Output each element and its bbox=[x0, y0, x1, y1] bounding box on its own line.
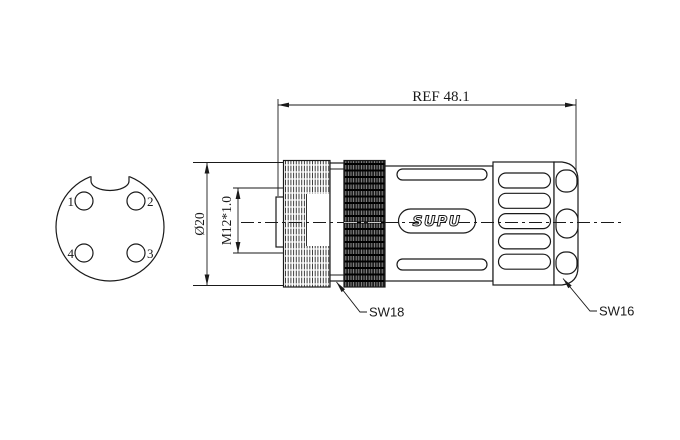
dim-overall-length-text: REF 48.1 bbox=[412, 89, 470, 105]
arrowhead-left bbox=[278, 103, 289, 108]
pin-1 bbox=[75, 192, 93, 210]
arrowhead-top bbox=[205, 163, 210, 174]
pin-4-label: 4 bbox=[68, 246, 75, 261]
pin-4 bbox=[75, 244, 93, 262]
keyway-notch-mask bbox=[90, 171, 129, 178]
connector-face-outline bbox=[56, 173, 164, 281]
drawing-canvas: 1 2 4 3 REF 48.1 Ø20 M12*1.0 bbox=[0, 0, 680, 440]
coupling-nut-relief bbox=[307, 194, 330, 246]
pin-2-label: 2 bbox=[147, 194, 154, 209]
dim-thread-text: M12*1.0 bbox=[219, 196, 234, 245]
arrowhead-bottom bbox=[236, 242, 241, 253]
cable-gland-cap bbox=[554, 162, 578, 285]
connector-technical-drawing: 1 2 4 3 REF 48.1 Ø20 M12*1.0 bbox=[0, 0, 680, 440]
callout-sw18: SW18 bbox=[337, 282, 405, 320]
pin-1-label: 1 bbox=[68, 194, 75, 209]
logo-text: SUPU bbox=[412, 214, 461, 230]
dimension-thread: M12*1.0 bbox=[219, 188, 284, 253]
label-sw16: SW16 bbox=[599, 304, 634, 319]
pin-3 bbox=[127, 244, 145, 262]
pin-2 bbox=[127, 192, 145, 210]
arrowhead-right bbox=[565, 103, 576, 108]
front-view: 1 2 4 3 bbox=[56, 171, 164, 281]
pin-3-label: 3 bbox=[147, 246, 154, 261]
arrowhead-bottom bbox=[205, 275, 210, 286]
arrowhead-top bbox=[236, 188, 241, 199]
label-sw18: SW18 bbox=[369, 305, 404, 320]
dim-outer-diameter-text: Ø20 bbox=[192, 212, 207, 235]
grip-sleeve bbox=[493, 162, 554, 285]
callout-sw16: SW16 bbox=[563, 279, 634, 319]
